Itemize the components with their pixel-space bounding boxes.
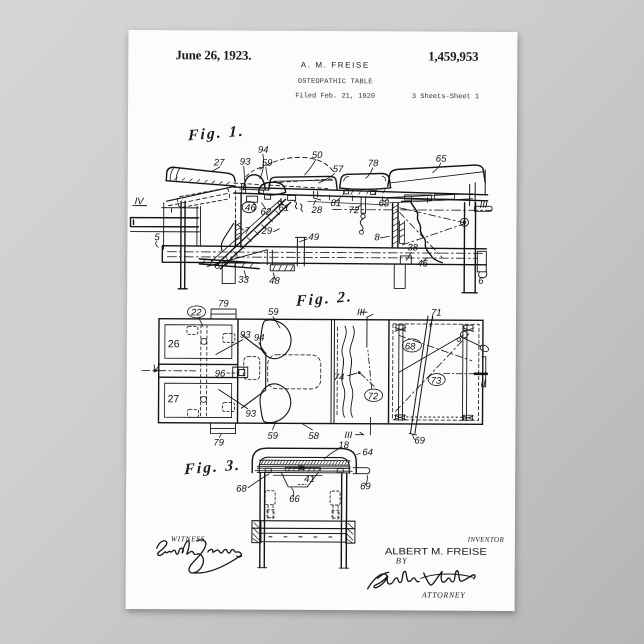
svg-text:64: 64 xyxy=(362,447,373,458)
svg-text:Filed Feb. 21, 1920: Filed Feb. 21, 1920 xyxy=(295,92,375,100)
svg-text:59: 59 xyxy=(267,431,278,442)
svg-text:Fig. 3.: Fig. 3. xyxy=(183,457,241,479)
svg-text:33: 33 xyxy=(238,275,249,286)
svg-text:93: 93 xyxy=(245,409,256,420)
svg-text:41: 41 xyxy=(304,474,315,485)
svg-text:79: 79 xyxy=(218,298,229,309)
svg-text:1,459,953: 1,459,953 xyxy=(428,49,479,64)
svg-text:46: 46 xyxy=(245,203,256,214)
svg-text:BY: BY xyxy=(396,555,408,565)
svg-text:Fig. 2.: Fig. 2. xyxy=(295,288,353,310)
svg-text:58: 58 xyxy=(308,431,319,442)
svg-text:18: 18 xyxy=(338,440,349,451)
svg-text:WITNESS: WITNESS xyxy=(171,534,205,543)
svg-text:29: 29 xyxy=(260,226,272,237)
svg-text:ATTORNEY: ATTORNEY xyxy=(421,591,466,600)
svg-text:74: 74 xyxy=(334,372,345,383)
svg-text:59: 59 xyxy=(268,307,279,318)
svg-text:49: 49 xyxy=(308,232,319,243)
svg-text:OSTEOPATHIC TABLE: OSTEOPATHIC TABLE xyxy=(298,78,373,86)
svg-text:Fig. 1.: Fig. 1. xyxy=(187,123,245,145)
svg-text:50: 50 xyxy=(312,150,323,161)
svg-text:6: 6 xyxy=(478,276,484,287)
svg-text:78: 78 xyxy=(368,158,379,169)
svg-text:27: 27 xyxy=(213,157,225,168)
svg-text:96: 96 xyxy=(215,368,226,379)
svg-text:III: III xyxy=(357,307,365,318)
svg-text:A. M. FREISE: A. M. FREISE xyxy=(301,60,370,69)
svg-text:26: 26 xyxy=(168,338,180,350)
svg-text:38: 38 xyxy=(407,242,418,253)
svg-text:June 26, 1923.: June 26, 1923. xyxy=(175,47,251,62)
svg-text:79: 79 xyxy=(213,437,224,448)
svg-text:8: 8 xyxy=(374,232,380,243)
svg-text:69: 69 xyxy=(360,481,371,492)
svg-text:46: 46 xyxy=(417,258,428,269)
svg-text:68: 68 xyxy=(236,484,247,495)
svg-text:III: III xyxy=(480,200,488,211)
svg-text:28: 28 xyxy=(311,205,323,216)
svg-text:27: 27 xyxy=(168,393,180,405)
svg-text:66: 66 xyxy=(289,494,300,505)
svg-text:81: 81 xyxy=(331,198,342,209)
svg-text:59: 59 xyxy=(262,158,273,169)
svg-text:94: 94 xyxy=(254,333,265,344)
svg-text:3 Sheets-Sheet 1: 3 Sheets-Sheet 1 xyxy=(412,93,479,101)
svg-text:5: 5 xyxy=(154,232,160,243)
svg-text:68: 68 xyxy=(379,198,390,209)
svg-text:INVENTOR: INVENTOR xyxy=(467,536,505,544)
svg-text:65: 65 xyxy=(436,154,447,165)
svg-text:71: 71 xyxy=(431,308,442,319)
svg-text:69: 69 xyxy=(414,435,425,446)
svg-text:93: 93 xyxy=(240,157,251,168)
